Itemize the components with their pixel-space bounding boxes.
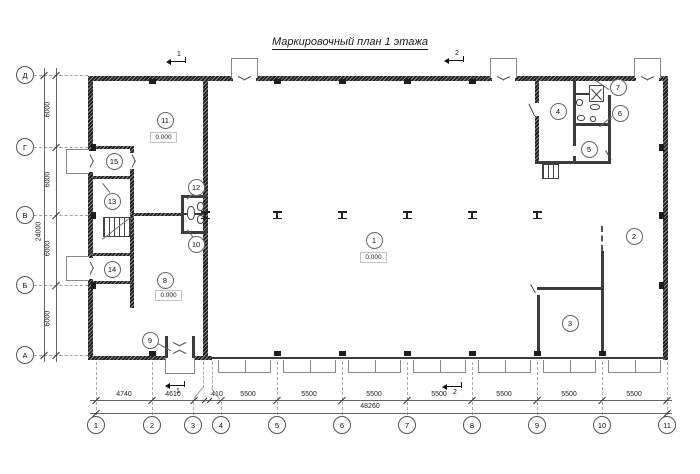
room-number-circle: 11 bbox=[157, 112, 174, 129]
column-mark bbox=[91, 282, 96, 289]
wall-room2-dashed bbox=[601, 226, 603, 251]
wall-right-block-right bbox=[608, 95, 611, 161]
grid-col-bubble: 10 bbox=[593, 416, 611, 434]
wall-rooms45-divider bbox=[573, 156, 576, 163]
col-axis-line bbox=[602, 362, 603, 415]
wall-room2-partition bbox=[601, 251, 604, 356]
room-number-circle: 2 bbox=[626, 228, 643, 245]
steel-column bbox=[201, 211, 210, 219]
col-axis-line bbox=[203, 362, 204, 388]
col-axis-line bbox=[96, 362, 97, 415]
stairs-exterior bbox=[542, 164, 559, 179]
steel-column bbox=[533, 211, 542, 219]
dim-label-left: 6000 bbox=[45, 238, 52, 260]
steel-column bbox=[338, 211, 347, 219]
wall-rooms46-divider bbox=[573, 80, 576, 146]
room-number-circle: 8 bbox=[157, 272, 174, 289]
dim-label-bottom: 5500 bbox=[293, 391, 325, 398]
grid-row-bubble: Д bbox=[16, 66, 34, 84]
gate-left-lower bbox=[66, 256, 89, 281]
tambour-vestibule bbox=[165, 358, 195, 374]
door-leaf-room4 bbox=[529, 104, 536, 116]
steel-column bbox=[468, 211, 477, 219]
col-axis-line bbox=[212, 362, 213, 388]
column-mark bbox=[274, 79, 281, 84]
wall-room15-top bbox=[92, 146, 133, 149]
shower-stall bbox=[589, 85, 604, 102]
grid-col-bubble: 2 bbox=[143, 416, 161, 434]
room-number-circle: 13 bbox=[104, 193, 121, 210]
room-leader-line bbox=[102, 183, 110, 193]
grid-row-bubble: Г bbox=[16, 138, 34, 156]
column-mark bbox=[534, 351, 541, 356]
dim-label-bottom: 5500 bbox=[618, 391, 650, 398]
room-number-circle: 3 bbox=[562, 315, 579, 332]
toilet-fixture bbox=[577, 115, 585, 121]
sink-fixture bbox=[590, 116, 596, 122]
gate-break-mark bbox=[497, 74, 510, 80]
dim-label-left: 6000 bbox=[45, 99, 52, 121]
grid-col-bubble: 7 bbox=[398, 416, 416, 434]
floor-plan-drawing: Маркировочный план 1 этажа bbox=[0, 0, 700, 474]
room-number-circle: 10 bbox=[188, 236, 205, 253]
wall-room15-bottom bbox=[92, 176, 133, 179]
door-break-mark bbox=[173, 350, 186, 356]
wall-rooms56-divider bbox=[573, 123, 611, 126]
room-number-circle: 15 bbox=[106, 153, 123, 170]
gate-break-mark bbox=[641, 74, 654, 80]
door-break-mark bbox=[173, 340, 186, 346]
toilet-fixture bbox=[197, 202, 204, 211]
grid-row-bubble: Б bbox=[16, 276, 34, 294]
col-axis-line bbox=[277, 362, 278, 415]
column-mark bbox=[469, 351, 476, 356]
grid-row-bubble: В bbox=[16, 206, 34, 224]
gate-break-mark bbox=[88, 262, 94, 275]
column-mark bbox=[404, 79, 411, 84]
col-axis-line bbox=[667, 362, 668, 415]
toilet-fixture bbox=[590, 104, 600, 110]
grid-col-bubble: 4 bbox=[212, 416, 230, 434]
wall-row-v-left bbox=[130, 213, 183, 216]
wall-room14-bottom bbox=[92, 281, 133, 284]
column-mark bbox=[599, 351, 606, 356]
window-bay bbox=[543, 360, 596, 373]
dim-label-left-total: 24000 bbox=[36, 219, 43, 245]
window-bay bbox=[218, 360, 271, 373]
row-axis-line bbox=[34, 215, 88, 216]
window-bay bbox=[283, 360, 336, 373]
dim-line-bottom-total bbox=[90, 413, 672, 414]
opening-break-mark bbox=[130, 155, 136, 168]
drawing-title: Маркировочный план 1 этажа bbox=[0, 36, 700, 48]
grid-col-bubble: 5 bbox=[268, 416, 286, 434]
sink-fixture bbox=[576, 99, 583, 106]
wc-block-bottom bbox=[181, 231, 207, 234]
steel-column bbox=[273, 211, 282, 219]
room-number-circle: 7 bbox=[610, 79, 627, 96]
grid-col-bubble: 9 bbox=[528, 416, 546, 434]
col-axis-line bbox=[537, 362, 538, 415]
gate-left-upper bbox=[66, 149, 89, 174]
dim-label-left: 6000 bbox=[45, 169, 52, 191]
dim-line-bottom-segments bbox=[90, 400, 672, 401]
column-mark bbox=[339, 351, 346, 356]
column-mark bbox=[339, 79, 346, 84]
column-mark bbox=[149, 351, 156, 356]
dim-label-bottom: 4740 bbox=[108, 391, 140, 398]
window-bay bbox=[608, 360, 661, 373]
column-mark bbox=[404, 351, 411, 356]
column-mark bbox=[149, 79, 156, 84]
dim-label-bottom: 5500 bbox=[553, 391, 585, 398]
door-leaf-room3 bbox=[530, 284, 536, 293]
room-number-circle: 1 bbox=[366, 232, 383, 249]
column-mark bbox=[659, 282, 664, 289]
col-axis-line bbox=[472, 362, 473, 415]
dim-label-bottom: 4610 bbox=[157, 391, 189, 398]
grid-col-bubble: 3 bbox=[184, 416, 202, 434]
grid-col-bubble: 11 bbox=[658, 416, 676, 434]
column-mark bbox=[659, 144, 664, 151]
dim-label-bottom-total: 48260 bbox=[352, 403, 388, 410]
elevation-mark: 0.000 bbox=[360, 252, 387, 263]
dim-label-left: 6000 bbox=[45, 308, 52, 330]
toilet-fixture bbox=[187, 206, 195, 220]
dim-label-bottom: 5500 bbox=[488, 391, 520, 398]
gate-break-mark bbox=[88, 155, 94, 168]
dim-label-bottom: 5500 bbox=[232, 391, 264, 398]
window-bay bbox=[413, 360, 466, 373]
grid-col-bubble: 6 bbox=[333, 416, 351, 434]
dim-label-bottom: 5500 bbox=[358, 391, 390, 398]
grid-row-bubble: А bbox=[16, 346, 34, 364]
wall-room14-top bbox=[92, 253, 133, 256]
elevation-mark: 0.000 bbox=[150, 132, 177, 143]
grid-col-bubble: 1 bbox=[87, 416, 105, 434]
room-number-circle: 5 bbox=[581, 141, 598, 158]
column-mark bbox=[469, 79, 476, 84]
column-mark bbox=[274, 351, 281, 356]
col-axis-line bbox=[152, 362, 153, 415]
col-axis-line bbox=[407, 362, 408, 415]
column-mark bbox=[91, 212, 96, 219]
room-number-circle: 4 bbox=[550, 103, 567, 120]
column-mark bbox=[91, 144, 96, 151]
room-number-circle: 9 bbox=[142, 332, 159, 349]
col-axis-line bbox=[342, 362, 343, 415]
wall-right-block-left2 bbox=[535, 116, 539, 163]
row-axis-line bbox=[34, 285, 88, 286]
wall-bottom-glazed bbox=[212, 357, 667, 359]
wall-right-block-left bbox=[535, 80, 539, 103]
gate-break-mark bbox=[238, 74, 251, 80]
steel-column bbox=[403, 211, 412, 219]
column-mark bbox=[659, 212, 664, 219]
room-number-circle: 6 bbox=[612, 105, 629, 122]
wall-room3-left bbox=[537, 295, 540, 356]
elevation-mark: 0.000 bbox=[155, 290, 182, 301]
row-axis-line bbox=[34, 147, 88, 148]
dim-label-bottom: 5500 bbox=[423, 391, 455, 398]
room-number-circle: 12 bbox=[188, 179, 205, 196]
window-bay bbox=[478, 360, 531, 373]
room-number-circle: 14 bbox=[104, 261, 121, 278]
window-bay bbox=[348, 360, 401, 373]
wall-room3-top bbox=[537, 287, 604, 290]
tambour-wall-right bbox=[192, 336, 195, 358]
wall-top bbox=[88, 76, 667, 81]
grid-col-bubble: 8 bbox=[463, 416, 481, 434]
